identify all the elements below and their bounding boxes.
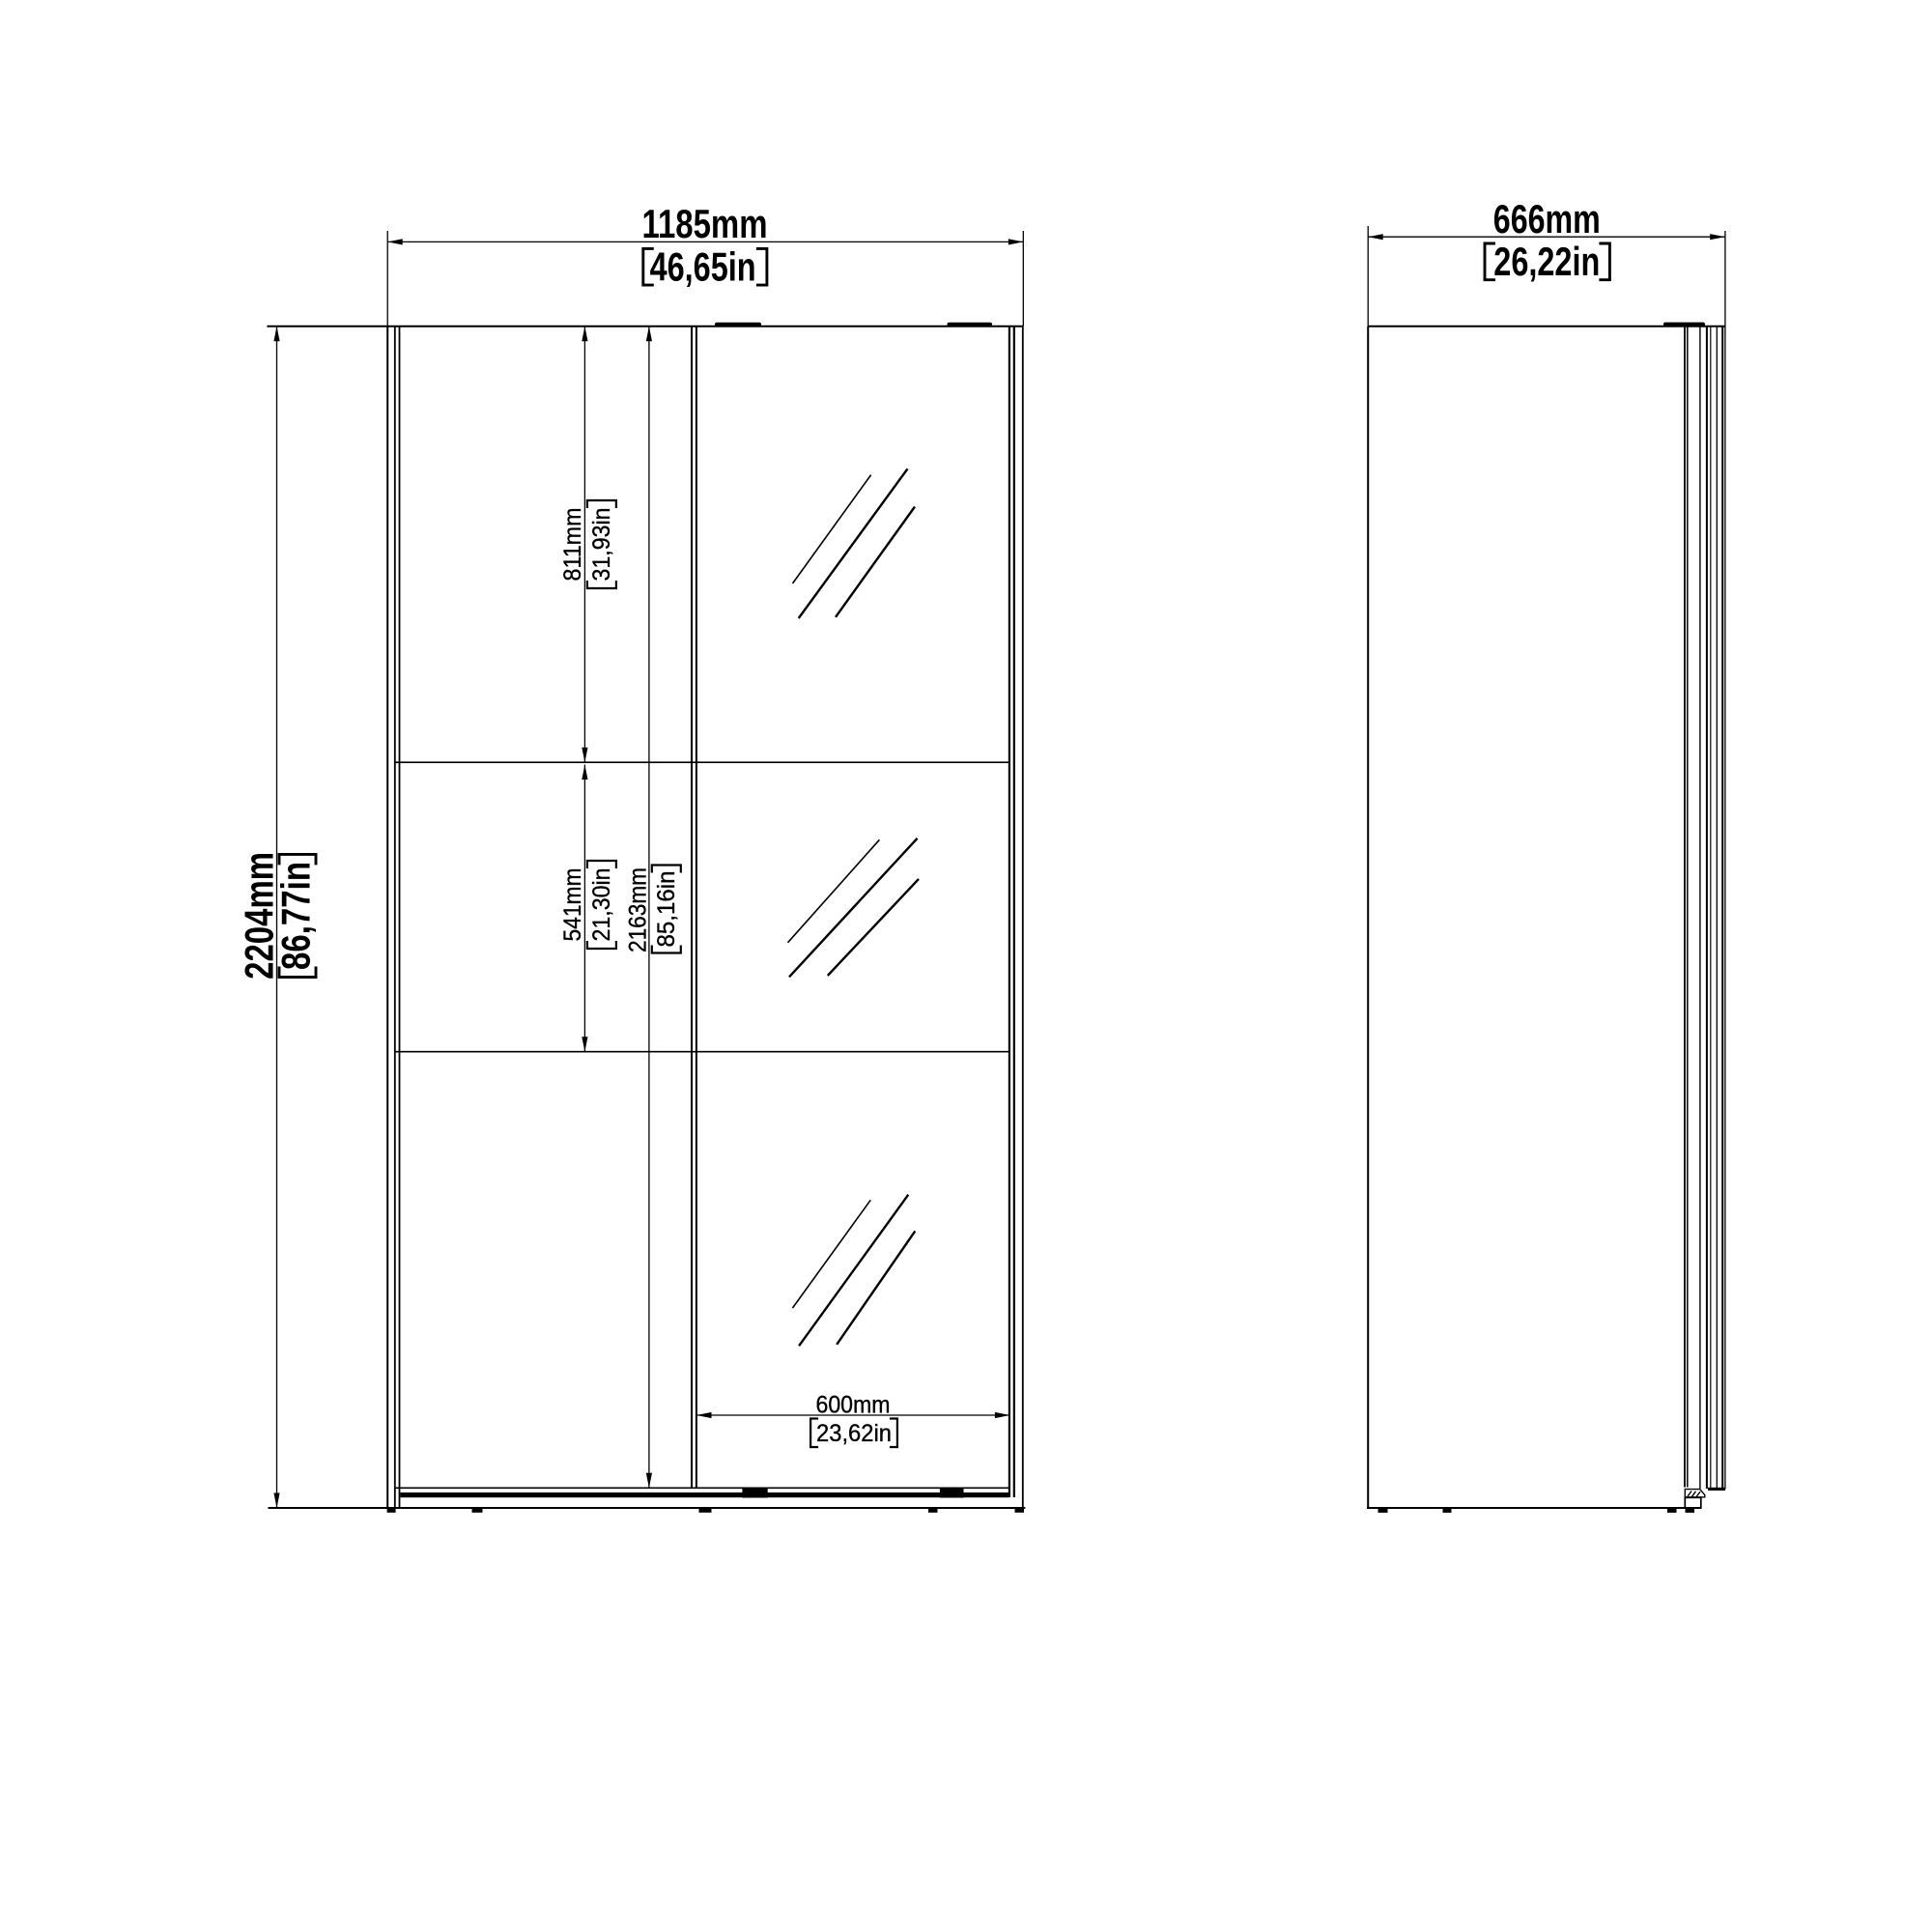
svg-text:541mm: 541mm: [559, 868, 586, 942]
svg-text:1185mm: 1185mm: [642, 201, 768, 246]
svg-text:600mm: 600mm: [816, 1392, 891, 1419]
svg-text:21,30in: 21,30in: [588, 868, 615, 942]
svg-text:26,22in: 26,22in: [1493, 239, 1600, 284]
svg-text:2163mm: 2163mm: [625, 867, 652, 952]
svg-text:811mm: 811mm: [559, 508, 586, 582]
svg-text:666mm: 666mm: [1493, 196, 1601, 241]
svg-text:46,65in: 46,65in: [650, 243, 756, 289]
svg-text:31,93in: 31,93in: [588, 508, 615, 582]
svg-text:85,16in: 85,16in: [653, 871, 680, 948]
svg-text:23,62in: 23,62in: [816, 1420, 892, 1447]
svg-text:86,77in: 86,77in: [273, 862, 319, 970]
